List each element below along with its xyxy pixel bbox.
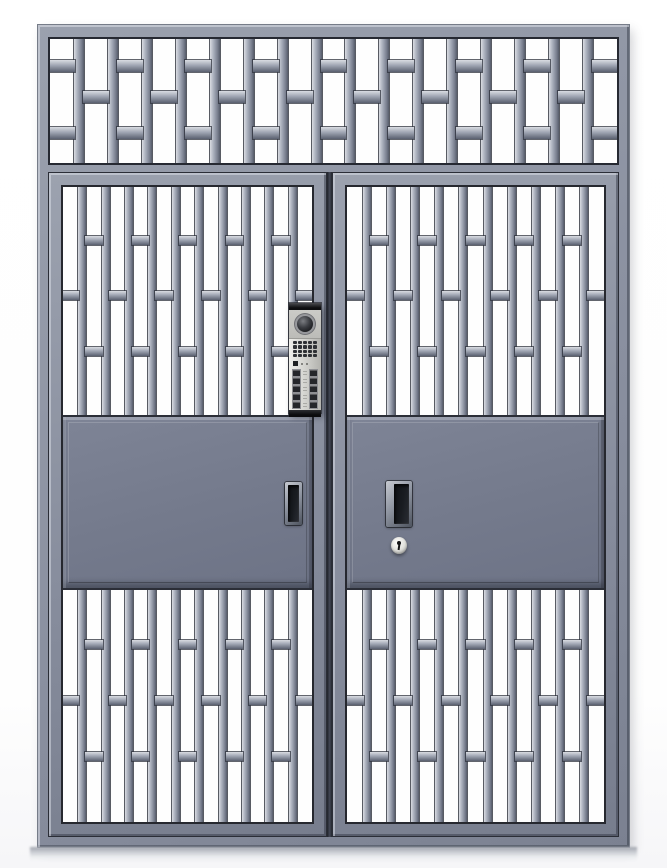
grille-bar (532, 590, 540, 822)
grille-rung (117, 60, 143, 72)
grille-rung (466, 640, 484, 649)
mic-hole-icon (306, 363, 308, 365)
grille-rung (219, 91, 245, 103)
grille-rung (418, 236, 436, 245)
grille-rung (456, 60, 482, 72)
grille-bar (102, 590, 110, 822)
grille-rung (132, 640, 149, 649)
call-button-row (292, 393, 318, 401)
grille-bar (435, 590, 443, 822)
grille-bar (435, 187, 443, 415)
grille-bar (484, 187, 492, 415)
transom-grille (50, 39, 617, 163)
grille-rung (491, 291, 509, 300)
floor-shadow (30, 847, 637, 861)
grille-rung (249, 696, 266, 705)
call-button-label (303, 395, 307, 399)
grille-rung (132, 347, 149, 356)
doors-region (48, 172, 619, 837)
grille-rung (347, 291, 364, 300)
grille-rung (296, 291, 312, 300)
grille-rung (185, 127, 211, 139)
grille-bar (556, 590, 564, 822)
speaker-grille (289, 339, 321, 359)
grille-rung (515, 236, 533, 245)
grille-rung (394, 291, 412, 300)
call-button[interactable] (292, 385, 301, 393)
speaker-hole-icon (298, 341, 302, 344)
grille-rung (370, 236, 388, 245)
grille-rung (466, 236, 484, 245)
speaker-hole-icon (303, 345, 307, 348)
grille-bar (242, 187, 250, 415)
grille-bar (459, 187, 467, 415)
grille-rung (490, 91, 516, 103)
transom-opening (48, 37, 619, 165)
call-button-row (292, 385, 318, 393)
right-lower-grille (347, 590, 604, 822)
grille-rung (272, 640, 289, 649)
grille-bar (363, 187, 371, 415)
speaker-hole-icon (303, 354, 307, 357)
grille-rung (418, 347, 436, 356)
indicator-led (293, 361, 298, 366)
grille-rung (151, 91, 177, 103)
intercom-camera-section (289, 310, 321, 339)
grille-rung (422, 91, 448, 103)
call-button[interactable] (309, 401, 318, 409)
grille-rung (155, 291, 172, 300)
grille-rung (515, 640, 533, 649)
call-button[interactable] (292, 377, 301, 385)
call-button[interactable] (309, 385, 318, 393)
speaker-hole-icon (313, 345, 317, 348)
grille-rung (563, 640, 581, 649)
grille-rung (272, 236, 289, 245)
door-leaf-left-inner (61, 185, 314, 824)
grille-bar (387, 590, 395, 822)
grille-rung (202, 696, 219, 705)
grille-bar (289, 590, 297, 822)
grille-bar (172, 590, 180, 822)
door-leaf-right-inner (345, 185, 606, 824)
grille-rung (370, 347, 388, 356)
handle-recess (394, 484, 409, 524)
grille-rung (63, 291, 79, 300)
grille-bar (219, 187, 227, 415)
call-button[interactable] (292, 369, 301, 377)
grille-rung (592, 60, 617, 72)
grille-rung (558, 91, 584, 103)
grille-rung (388, 127, 414, 139)
security-door-scene (0, 0, 667, 868)
grille-bar (219, 590, 227, 822)
grille-bar (532, 187, 540, 415)
grille-bar (484, 590, 492, 822)
grille-rung (592, 127, 617, 139)
handle-recess (288, 485, 299, 522)
grille-rung (179, 347, 196, 356)
grille-rung (253, 127, 279, 139)
grille-bar (195, 590, 203, 822)
call-button-label (303, 387, 307, 391)
call-button-label (303, 371, 307, 375)
grille-bar (78, 187, 86, 415)
call-button[interactable] (309, 369, 318, 377)
left-solid-panel (63, 415, 312, 590)
grille-rung (226, 236, 243, 245)
grille-bar (265, 187, 273, 415)
call-button-block (289, 368, 321, 410)
grille-rung (50, 60, 75, 72)
grille-rung (563, 236, 581, 245)
camera-lens-icon (297, 316, 313, 332)
grille-rung (50, 127, 75, 139)
grille-rung (226, 347, 243, 356)
left-lower-grille (63, 590, 312, 822)
grille-rung (466, 347, 484, 356)
grille-rung (109, 291, 126, 300)
mic-hole-icon (301, 363, 303, 365)
call-button-row (292, 369, 318, 377)
speaker-hole-icon (308, 354, 312, 357)
grille-rung (418, 752, 436, 761)
call-button-label (303, 403, 307, 407)
grille-bar (102, 187, 110, 415)
grille-rung (109, 696, 126, 705)
grille-rung (388, 60, 414, 72)
grille-rung (179, 640, 196, 649)
grille-bar (508, 187, 516, 415)
call-button-label (303, 379, 307, 383)
speaker-hole-icon (308, 341, 312, 344)
grille-bar (148, 187, 156, 415)
call-button[interactable] (309, 393, 318, 401)
grille-rung (132, 236, 149, 245)
call-button[interactable] (292, 393, 301, 401)
speaker-hole-icon (313, 350, 317, 353)
grille-bar (244, 39, 254, 163)
grille-bar (379, 39, 389, 163)
grille-rung (321, 60, 347, 72)
grille-rung (539, 291, 557, 300)
right-door-handle[interactable] (386, 481, 412, 527)
grille-bar (580, 590, 588, 822)
grille-rung (226, 752, 243, 761)
intercom-top-cap (289, 303, 321, 310)
speaker-hole-icon (298, 350, 302, 353)
speaker-hole-icon (293, 350, 297, 353)
grille-rung (347, 696, 364, 705)
grille-rung (442, 291, 460, 300)
grille-bar (583, 39, 593, 163)
grille-rung (63, 696, 79, 705)
speaker-hole-icon (313, 341, 317, 344)
grille-bar (556, 187, 564, 415)
grille-rung (491, 696, 509, 705)
grille-rung (394, 696, 412, 705)
grille-rung (321, 127, 347, 139)
grille-bar (312, 39, 322, 163)
grille-bar (580, 187, 588, 415)
grille-bar (242, 590, 250, 822)
speaker-hole-icon (293, 345, 297, 348)
grille-rung (83, 91, 109, 103)
grille-rung (253, 60, 279, 72)
grille-rung (202, 291, 219, 300)
speaker-hole-icon (303, 341, 307, 344)
left-upper-grille (63, 187, 312, 415)
grille-rung (185, 60, 211, 72)
call-button[interactable] (309, 377, 318, 385)
grille-rung (117, 127, 143, 139)
grille-rung (85, 752, 102, 761)
intercom-indicator-row (289, 359, 321, 368)
grille-bar (459, 590, 467, 822)
grille-bar (125, 590, 133, 822)
grille-rung (466, 752, 484, 761)
call-button[interactable] (292, 401, 301, 409)
grille-rung (296, 696, 312, 705)
intercom-bottom-cap (289, 410, 321, 417)
grille-rung (539, 696, 557, 705)
grille-rung (272, 347, 289, 356)
grille-rung (85, 640, 102, 649)
left-door-handle[interactable] (285, 482, 302, 525)
speaker-hole-icon (313, 354, 317, 357)
grille-rung (132, 752, 149, 761)
speaker-hole-icon (308, 350, 312, 353)
grille-bar (176, 39, 186, 163)
grille-bar (363, 590, 371, 822)
panel-bevel (68, 422, 307, 583)
intercom-panel (289, 303, 321, 413)
grille-bar (78, 590, 86, 822)
grille-bar (172, 187, 180, 415)
speaker-hole-icon (303, 350, 307, 353)
speaker-hole-icon (298, 354, 302, 357)
grille-rung (179, 752, 196, 761)
grille-rung (515, 752, 533, 761)
grille-bar (387, 187, 395, 415)
grille-rung (249, 291, 266, 300)
grille-rung (563, 347, 581, 356)
grille-bar (411, 187, 419, 415)
grille-rung (456, 127, 482, 139)
grille-rung (370, 640, 388, 649)
grille-bar (447, 39, 457, 163)
grille-rung (155, 696, 172, 705)
keyhole-icon (397, 541, 401, 545)
door-leaf-right (332, 172, 619, 837)
grille-bar (515, 39, 525, 163)
grille-rung (563, 752, 581, 761)
door-leaf-left (48, 172, 327, 837)
grille-bar (148, 590, 156, 822)
grille-bar (265, 590, 273, 822)
grille-rung (442, 696, 460, 705)
grille-bar (195, 187, 203, 415)
grille-bar (125, 187, 133, 415)
grille-rung (587, 291, 604, 300)
grille-rung (85, 347, 102, 356)
speaker-hole-icon (293, 341, 297, 344)
grille-rung (587, 696, 604, 705)
speaker-hole-icon (293, 354, 297, 357)
grille-rung (354, 91, 380, 103)
grille-rung (226, 640, 243, 649)
right-upper-grille (347, 187, 604, 415)
grille-rung (85, 236, 102, 245)
call-button-row (292, 377, 318, 385)
call-button-row (292, 401, 318, 409)
key-cylinder-lock[interactable] (391, 537, 407, 554)
grille-rung (524, 60, 550, 72)
grille-rung (515, 347, 533, 356)
speaker-hole-icon (298, 345, 302, 348)
grille-rung (179, 236, 196, 245)
grille-rung (272, 752, 289, 761)
right-solid-panel (347, 415, 604, 590)
grille-rung (287, 91, 313, 103)
grille-bar (508, 590, 516, 822)
grille-bar (108, 39, 118, 163)
grille-rung (370, 752, 388, 761)
speaker-hole-icon (308, 345, 312, 348)
grille-rung (524, 127, 550, 139)
grille-rung (418, 640, 436, 649)
grille-bar (411, 590, 419, 822)
